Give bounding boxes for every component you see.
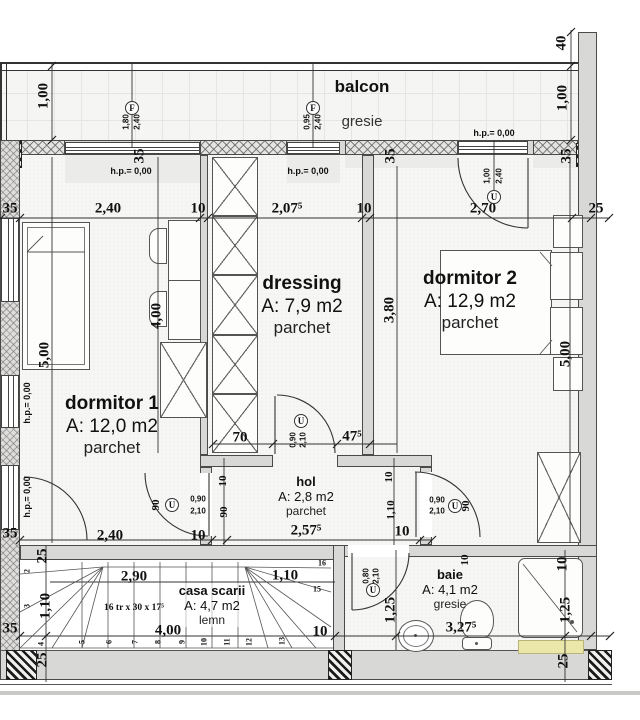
dimension-label: 70 <box>233 430 248 447</box>
headboard-1 <box>550 252 583 300</box>
hol-floor-label: parchet <box>278 504 334 518</box>
toilet-drain <box>475 642 478 645</box>
dimension-label: 40 <box>554 36 571 51</box>
room-label-dressing: dressing A: 7,9 m2 parchet <box>261 272 342 338</box>
dimension-label: 3,27⁵ <box>446 620 477 637</box>
dimension-label: 1,00 <box>36 83 53 109</box>
dimension-label: 4,00 <box>149 303 166 329</box>
dimension-label: 2,40 <box>314 114 323 130</box>
wardrobe-dormitor2 <box>537 452 581 543</box>
dormitor2-area: A: 12,9 m2 <box>423 290 517 313</box>
dormitor1-name: dormitor 1 <box>65 392 159 415</box>
chair-1 <box>149 228 167 264</box>
window-marker-icon: F <box>306 101 320 115</box>
dimension-label: 5 <box>78 640 87 644</box>
dimension-label: 2,90 <box>121 569 147 586</box>
dimension-label: 2,10 <box>299 432 308 448</box>
floor-plan: balcon gresie dormitor 1 A: 12,0 m2 parc… <box>0 0 640 720</box>
dimension-label: 1,00 <box>483 168 492 184</box>
dimension-label: 10 <box>395 524 410 541</box>
room-label-baie: baie A: 4,1 m2 gresie <box>422 567 478 611</box>
dimension-label: h.p.= 0,00 <box>287 166 328 176</box>
dressing-floor-label: parchet <box>261 318 342 338</box>
dimension-label: h.p.= 0,00 <box>22 382 32 423</box>
dimension-label: 90 <box>150 500 162 511</box>
dimension-label: 25 <box>589 201 604 218</box>
balcony-left-rail <box>0 62 7 140</box>
hol-area: A: 2,8 m2 <box>278 489 334 504</box>
dimension-label: 2,07⁵ <box>272 201 303 218</box>
dimension-label: 2,10 <box>429 507 445 516</box>
dimension-label: 35 <box>559 149 576 164</box>
dimension-label: 15 <box>313 585 321 594</box>
wall-dressing-bottom-left <box>200 455 273 467</box>
dimension-label: 35 <box>383 149 400 164</box>
baie-floor-label: gresie <box>422 597 478 611</box>
dimension-label: 9 <box>178 640 187 644</box>
dimension-label: 10 <box>191 201 206 218</box>
dimension-label: 2 <box>23 569 32 573</box>
dimension-label: 2,40 <box>133 114 142 130</box>
door-marker-icon: U <box>294 414 308 428</box>
dimension-label: 2,10 <box>190 507 206 516</box>
dimension-label: 25 <box>556 654 573 669</box>
wall-stairs-baie <box>333 545 345 652</box>
dimension-label: 2,40 <box>97 528 123 545</box>
stair-note: 16 tr x 30 x 17⁵ <box>104 603 164 613</box>
left-window-2 <box>1 375 19 428</box>
dimension-label: 10 <box>217 476 229 487</box>
dimension-label: 4,00 <box>155 623 181 640</box>
dimension-label: 35 <box>3 526 18 543</box>
dimension-label: 3 <box>23 604 32 608</box>
bottom-pier-right <box>588 650 612 680</box>
wall-stairs-top <box>20 545 345 560</box>
dimension-label: 2,40 <box>495 168 504 184</box>
hol-name: hol <box>278 474 334 489</box>
door-gap-baie <box>348 545 409 557</box>
casa-scarii-area: A: 4,7 m2 <box>179 598 246 613</box>
dimension-label: 12 <box>245 638 254 646</box>
dimension-label: 1,80 <box>122 114 131 130</box>
dimension-label: h.p.= 0,00 <box>110 166 151 176</box>
dimension-label: 4 <box>37 642 46 646</box>
balcon-name: balcon <box>335 77 390 96</box>
dimension-label: 16 <box>318 559 326 568</box>
dimension-label: 3,80 <box>382 297 399 323</box>
dormitor2-name: dormitor 2 <box>423 267 517 290</box>
balcony-door-leaf-closed <box>458 141 528 154</box>
door-marker-icon: U <box>165 498 179 512</box>
dimension-label: 1,00 <box>555 85 572 111</box>
wardrobe-dressing <box>212 157 258 453</box>
sink-drain <box>414 634 417 637</box>
nightstand-1 <box>553 215 583 248</box>
dimension-label: 10 <box>191 528 206 545</box>
dimension-label: 5,00 <box>37 342 54 368</box>
room-label-dormitor1: dormitor 1 A: 12,0 m2 parchet <box>65 392 159 458</box>
dimension-label: 10 <box>200 638 209 646</box>
dimension-label: h.p.= 0,00 <box>22 476 32 517</box>
balcony-railing <box>0 62 597 71</box>
dimension-label: 13 <box>278 637 287 645</box>
dressing-area: A: 7,9 m2 <box>261 295 342 318</box>
shower-threshold <box>518 640 584 654</box>
bottom-pier-mid <box>328 650 352 680</box>
dimension-label: 7 <box>131 640 140 644</box>
dimension-label: 10 <box>313 624 328 641</box>
left-window-1 <box>1 218 19 302</box>
top-wall-hatch-1 <box>20 140 65 155</box>
dressing-window <box>287 142 340 154</box>
dimension-label: 25 <box>35 653 52 668</box>
dresser-dormitor1 <box>160 342 207 418</box>
dimension-label: 25 <box>35 549 52 564</box>
dressing-name: dressing <box>261 272 342 295</box>
dimension-label: 6 <box>105 640 114 644</box>
dimension-label: 10 <box>459 555 471 566</box>
desk-divider <box>168 280 201 281</box>
door-marker-icon: U <box>366 583 380 597</box>
dimension-label: 10 <box>383 472 395 483</box>
dimension-label: 10 <box>555 557 572 572</box>
room-label-hol: hol A: 2,8 m2 parchet <box>278 474 334 518</box>
wardrobe-cell <box>212 275 258 334</box>
dimension-label: 90 <box>218 507 230 518</box>
casa-scarii-name: casa scarii <box>179 583 246 598</box>
wardrobe-cell <box>212 157 258 216</box>
dormitor1-floor-label: parchet <box>65 438 159 458</box>
dimension-label: 8 <box>154 640 163 644</box>
dimension-label: 1,10 <box>385 500 397 519</box>
dimension-label: 2,57⁵ <box>291 523 322 540</box>
bottom-pier-left <box>6 650 37 680</box>
dimension-label: 35 <box>3 201 18 218</box>
room-label-casa-scarii: casa scarii A: 4,7 m2 lemn <box>179 583 246 627</box>
dimension-label: 0,95 <box>303 114 312 130</box>
left-window-3 <box>1 465 19 530</box>
casa-scarii-floor-label: lemn <box>179 613 246 627</box>
dimension-label: 35 <box>3 621 18 638</box>
dimension-label: 11 <box>223 638 232 646</box>
bottom-exterior-wall <box>0 650 612 680</box>
dimension-label: 1,25 <box>558 597 575 623</box>
baie-name: baie <box>422 567 478 582</box>
dimension-label: 0,80 <box>362 568 371 584</box>
window-marker-icon: F <box>125 101 139 115</box>
balcon-floor-label: gresie <box>335 113 390 130</box>
dimension-label: 47⁵ <box>342 429 362 446</box>
wardrobe-cell <box>212 335 258 394</box>
dimension-label: 0,90 <box>429 496 445 505</box>
dimension-label: 2,40 <box>95 201 121 218</box>
dormitor1-area: A: 12,0 m2 <box>65 415 159 438</box>
top-wall-hatch-3 <box>345 140 458 155</box>
dormitor2-floor-label: parchet <box>423 313 517 333</box>
door-marker-icon: U <box>448 499 462 513</box>
plan-bottom-line <box>0 684 612 685</box>
dimension-label: 10 <box>357 201 372 218</box>
dimension-label: h.p.= 0,00 <box>473 128 514 138</box>
dimension-label: 5,00 <box>558 341 575 367</box>
dimension-label: 0,90 <box>190 495 206 504</box>
page-separator-line <box>0 691 640 695</box>
room-label-balcon: balcon gresie <box>335 77 390 130</box>
wall-dressing-bottom-right <box>337 455 432 467</box>
wardrobe-cell <box>212 216 258 275</box>
room-label-dormitor2: dormitor 2 A: 12,9 m2 parchet <box>423 267 517 333</box>
door-gap-dorm2 <box>420 472 432 537</box>
door-marker-icon: U <box>487 190 501 204</box>
dimension-label: 1,10 <box>38 593 55 619</box>
dimension-label: 35 <box>132 149 149 164</box>
baie-area: A: 4,1 m2 <box>422 582 478 597</box>
dimension-label: 1,10 <box>272 568 298 585</box>
dimension-label: 0,90 <box>289 432 298 448</box>
top-wall-hatch-2 <box>200 140 287 155</box>
dimension-label: 1,25 <box>383 597 400 623</box>
dimension-label: 2,10 <box>372 568 381 584</box>
